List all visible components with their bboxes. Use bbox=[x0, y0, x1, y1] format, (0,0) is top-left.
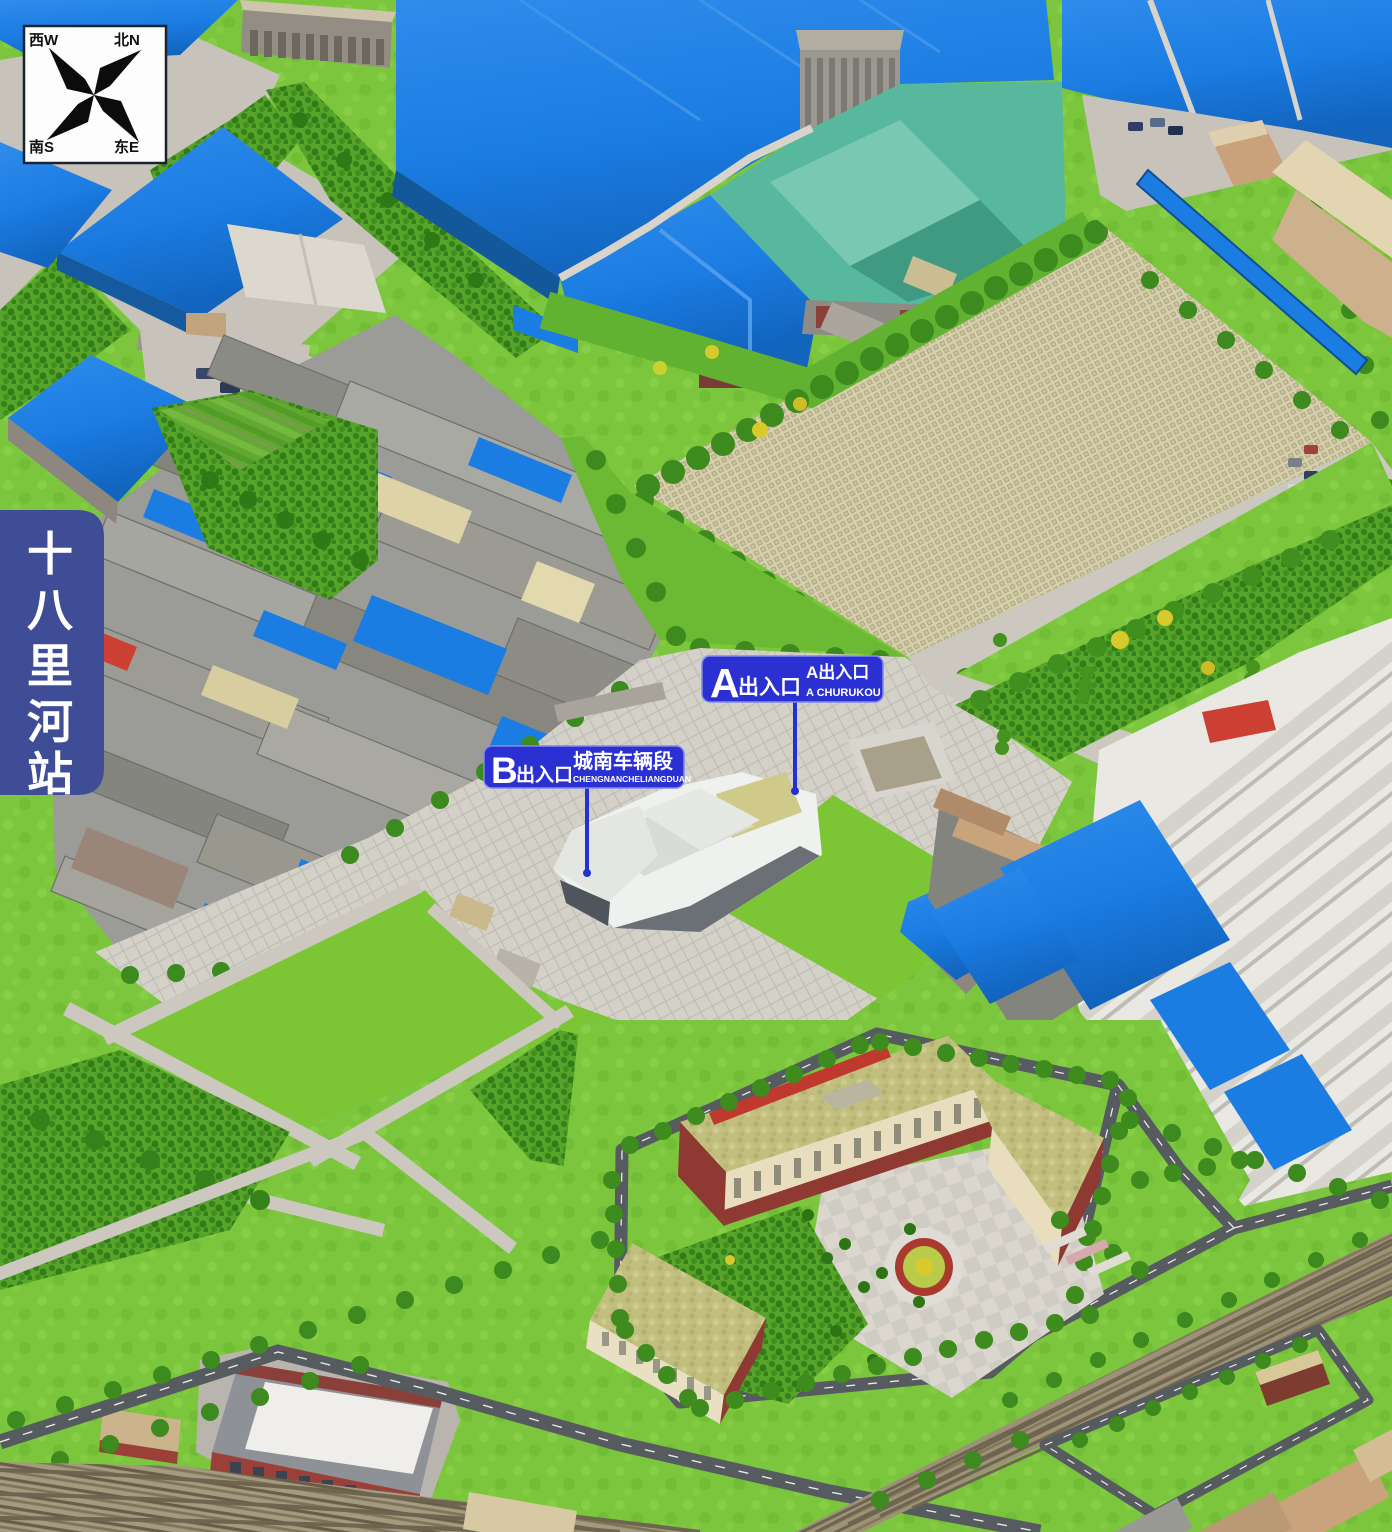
svg-text:河: 河 bbox=[27, 696, 73, 748]
svg-text:出入口: 出入口 bbox=[738, 676, 801, 699]
svg-text:十: 十 bbox=[27, 528, 73, 580]
svg-text:西W: 西W bbox=[29, 32, 59, 49]
svg-text:八: 八 bbox=[27, 584, 74, 636]
svg-text:里: 里 bbox=[27, 640, 73, 692]
svg-text:城南车辆段: 城南车辆段 bbox=[573, 749, 673, 773]
svg-text:A CHURUKOU: A CHURUKOU bbox=[806, 687, 881, 699]
svg-text:A出入口: A出入口 bbox=[806, 662, 869, 682]
svg-text:东E: 东E bbox=[114, 138, 139, 156]
svg-text:CHENGNANCHELIANGDUAN: CHENGNANCHELIANGDUAN bbox=[573, 774, 691, 784]
svg-text:A: A bbox=[710, 660, 740, 706]
svg-text:南S: 南S bbox=[29, 138, 54, 156]
svg-text:出入口: 出入口 bbox=[516, 763, 573, 786]
svg-text:站: 站 bbox=[27, 748, 73, 800]
svg-text:北N: 北N bbox=[114, 32, 140, 49]
svg-text:B: B bbox=[491, 750, 518, 791]
